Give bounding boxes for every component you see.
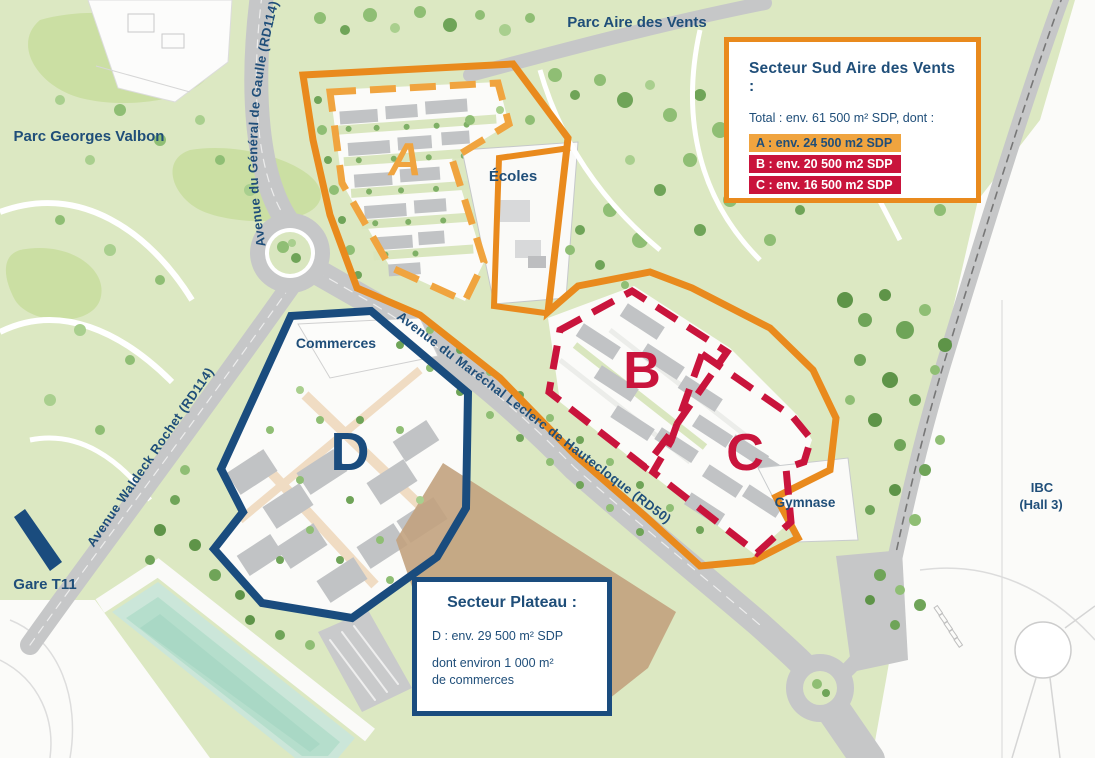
sector-c-letter: C <box>726 424 764 482</box>
gymnase-label: Gymnase <box>775 495 836 510</box>
commerces-label: Commerces <box>296 335 376 351</box>
legend-secteur-plateau: Secteur Plateau : D : env. 29 500 m² SDP… <box>412 577 612 716</box>
legend-plateau-line3: de commerces <box>432 673 592 687</box>
legend-row-sector-a: A : env. 24 500 m2 SDP <box>749 134 901 152</box>
ibc-label-line1: IBC <box>1031 480 1054 495</box>
legend-row-sector-c: C : env. 16 500 m2 SDP <box>749 176 901 194</box>
sector-b-letter: B <box>623 342 661 400</box>
legend-plateau-line1: D : env. 29 500 m² SDP <box>432 629 592 643</box>
legend-sud-title: Secteur Sud Aire des Vents : <box>749 60 964 96</box>
legend-row-sector-b: B : env. 20 500 m2 SDP <box>749 155 901 173</box>
legend-sud-total: Total : env. 61 500 m² SDP, dont : <box>749 111 964 125</box>
ibc-label-line2: (Hall 3) <box>1019 497 1062 512</box>
sector-d-letter: D <box>331 422 370 482</box>
sector-a-letter: A <box>387 133 421 185</box>
legend-plateau-line2: dont environ 1 000 m² <box>432 656 592 670</box>
legend-plateau-title: Secteur Plateau : <box>432 594 592 612</box>
gare-t11-label: Gare T11 <box>13 576 76 593</box>
ecoles-label: Écoles <box>489 168 537 185</box>
parc-aire-des-vents-label: Parc Aire des Vents <box>567 14 707 31</box>
masterplan-map: A B C D Parc Aire des Vents Parc Georges… <box>0 0 1095 758</box>
parc-georges-valbon-label: Parc Georges Valbon <box>14 128 165 145</box>
legend-secteur-sud: Secteur Sud Aire des Vents : Total : env… <box>724 37 981 203</box>
